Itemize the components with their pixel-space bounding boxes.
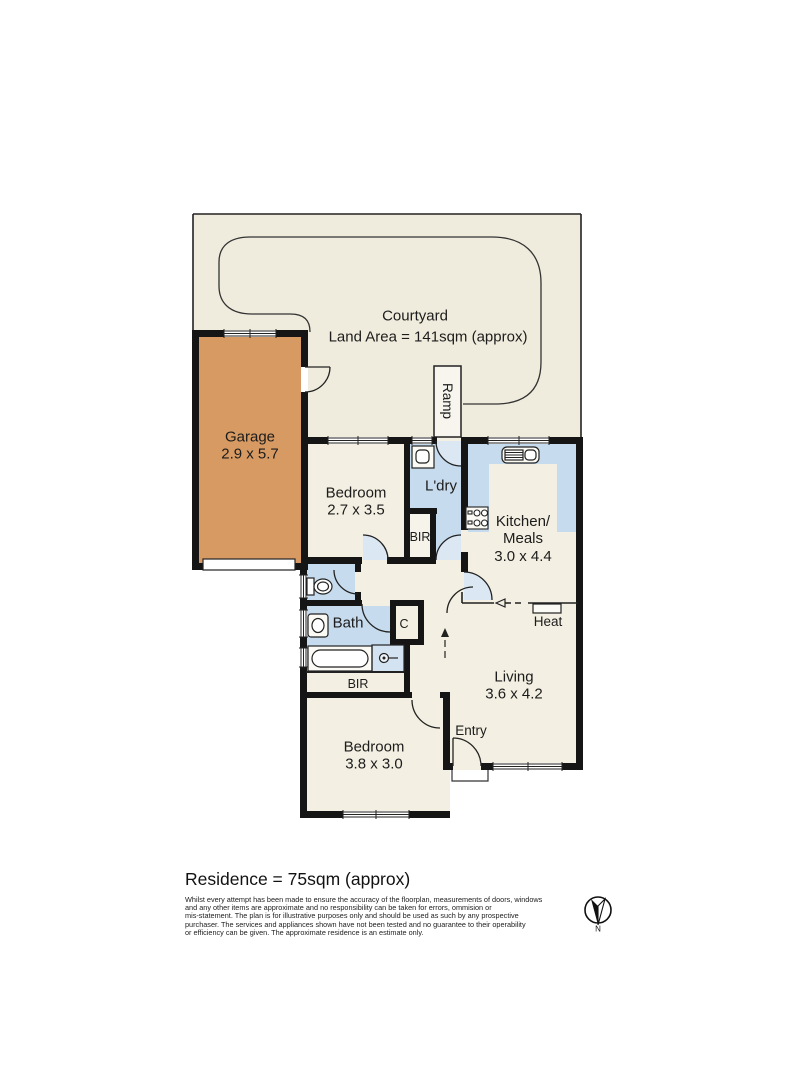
kitchen-sink-icon — [502, 447, 539, 463]
kitchen-label: Kitchen/ Meals 3.0 x 4.4 — [494, 513, 552, 565]
land-area-label: Land Area = 141sqm (approx) — [329, 328, 528, 345]
bir2-label: BIR — [348, 677, 369, 692]
cooktop-icon — [466, 507, 488, 529]
laundry-label: L'dry — [425, 477, 457, 494]
heater-unit — [533, 604, 561, 613]
laundry-trough-icon — [412, 446, 434, 468]
bath-label: Bath — [333, 614, 364, 631]
heat-label: Heat — [534, 614, 563, 630]
closet-label: C — [399, 617, 408, 632]
toilet-icon — [307, 578, 332, 595]
entry-label: Entry — [455, 723, 487, 739]
ramp-label: Ramp — [439, 383, 455, 419]
residence-title: Residence = 75sqm (approx) — [185, 869, 410, 890]
garage-door — [203, 559, 295, 570]
vanity-icon — [308, 614, 328, 637]
bathtub-icon — [308, 646, 372, 671]
floorplan-page: Courtyard Land Area = 141sqm (approx) Ga… — [0, 0, 800, 1083]
living-label: Living 3.6 x 4.2 — [485, 669, 543, 704]
north-compass-icon — [585, 897, 611, 925]
bedroom2-label: Bedroom 3.8 x 3.0 — [344, 739, 405, 774]
bedroom1-label: Bedroom 2.7 x 3.5 — [326, 485, 387, 520]
porch-step — [452, 770, 488, 781]
disclaimer-text: Whilst every attempt has been made to en… — [185, 896, 542, 937]
courtyard-label: Courtyard — [382, 307, 448, 324]
north-label: N — [595, 925, 601, 934]
garage-label: Garage 2.9 x 5.7 — [221, 429, 279, 464]
bir1-label: BIR — [410, 530, 431, 545]
disclaimer-line: or efficiency can be given. The approxim… — [185, 929, 542, 937]
